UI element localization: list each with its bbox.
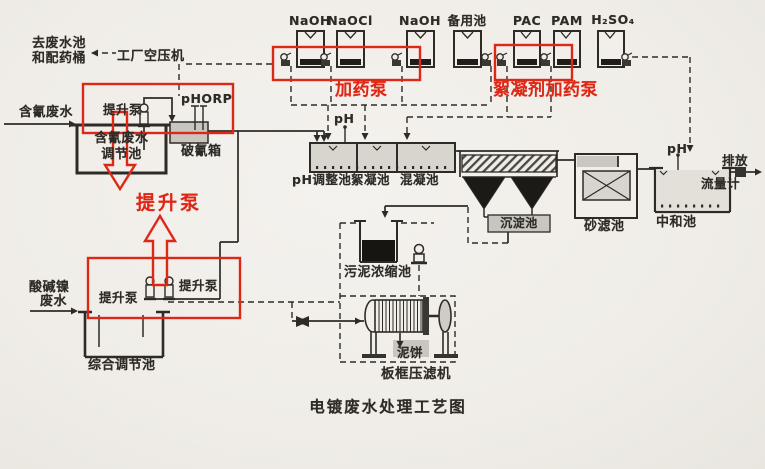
chem-label-naocl: NaOCl — [324, 14, 376, 27]
neutralization-ph-label: pH — [667, 142, 687, 155]
ph-adjust-tank-label: pH调整池 — [292, 173, 351, 186]
lift-pump-b1-label: 提升泵 — [99, 291, 138, 304]
chem-tank-h2so4 — [598, 31, 624, 67]
red-up-arrow — [145, 216, 175, 285]
dosing-pump-annotation: 加药泵 — [335, 81, 388, 99]
to-waste-note-line2: 和配药桶 — [32, 52, 86, 66]
diagram-title: 电镀废水处理工艺图 — [303, 399, 473, 415]
ph-orp-meter-label: pHORP — [181, 92, 232, 105]
comprehensive-tank-label: 综合调节池 — [88, 359, 156, 373]
cyanide-tank-label-line1: 含氰废水 — [77, 132, 166, 146]
chem-tank-naocl — [337, 31, 364, 67]
lift-pump-b2-label: 提升泵 — [179, 279, 218, 292]
chem-label-h2so4: H₂SO₄ — [585, 13, 641, 26]
chemical-tanks-shapes — [297, 31, 624, 67]
air-compressor-label: 工厂空压机 — [117, 50, 185, 64]
three-tank-block — [310, 143, 455, 172]
lift-pump-annotation: 提升泵 — [136, 193, 202, 213]
process-flow-diagram: 去废水池 和配药桶 工厂空压机 NaOH NaOCl NaOH 备用池 PAC … — [0, 0, 765, 469]
flow-meter-label: 流量计 — [701, 177, 740, 190]
ph-meter-label: pH — [334, 112, 354, 125]
chem-tank-pac — [514, 31, 540, 67]
coagulation-tank-label: 混凝池 — [400, 173, 439, 186]
lift-pump-b2-icon — [163, 277, 175, 299]
discharge-label: 排放 — [722, 154, 748, 167]
sludge-thickener-shape — [354, 221, 403, 262]
chem-tank-pam — [554, 31, 580, 67]
cyanide-tank-label-line2: 调节池 — [77, 148, 166, 162]
cyanide-inflow-label: 含氰废水 — [19, 106, 73, 120]
mud-cake-label: 泥饼 — [397, 346, 423, 359]
chem-tank-spare — [454, 31, 481, 67]
chem-tank-naoh1 — [297, 31, 324, 67]
filter-press-shape — [296, 297, 458, 358]
sludge-thickener-label: 污泥浓缩池 — [344, 266, 412, 280]
neutralization-tank-label: 中和池 — [656, 216, 697, 230]
sand-filter-label: 砂滤池 — [584, 220, 625, 234]
chem-label-naoh2: NaOH — [394, 14, 446, 27]
sedimentation-tank-label: 沉淀池 — [488, 217, 550, 230]
acid-nickel-inflow-line1: 酸碱镍 — [29, 281, 70, 295]
sludge-pump-icon — [411, 245, 427, 264]
cyanide-breaker-label: 破氰箱 — [181, 145, 222, 159]
acid-nickel-inflow-line2: 废水 — [40, 295, 67, 309]
to-waste-note-line1: 去废水池 — [32, 37, 86, 51]
chem-label-spare: 备用池 — [441, 14, 493, 27]
flocculation-tank-label: 絮凝池 — [351, 173, 390, 186]
flocculant-dosing-pump-annotation: 絮凝剂加药泵 — [493, 81, 598, 99]
sand-filter-shape — [575, 154, 637, 218]
filter-press-label: 板框压滤机 — [381, 367, 451, 381]
cyanide-breaker-shape — [170, 106, 208, 143]
lift-pump-top-label: 提升泵 — [103, 103, 142, 116]
